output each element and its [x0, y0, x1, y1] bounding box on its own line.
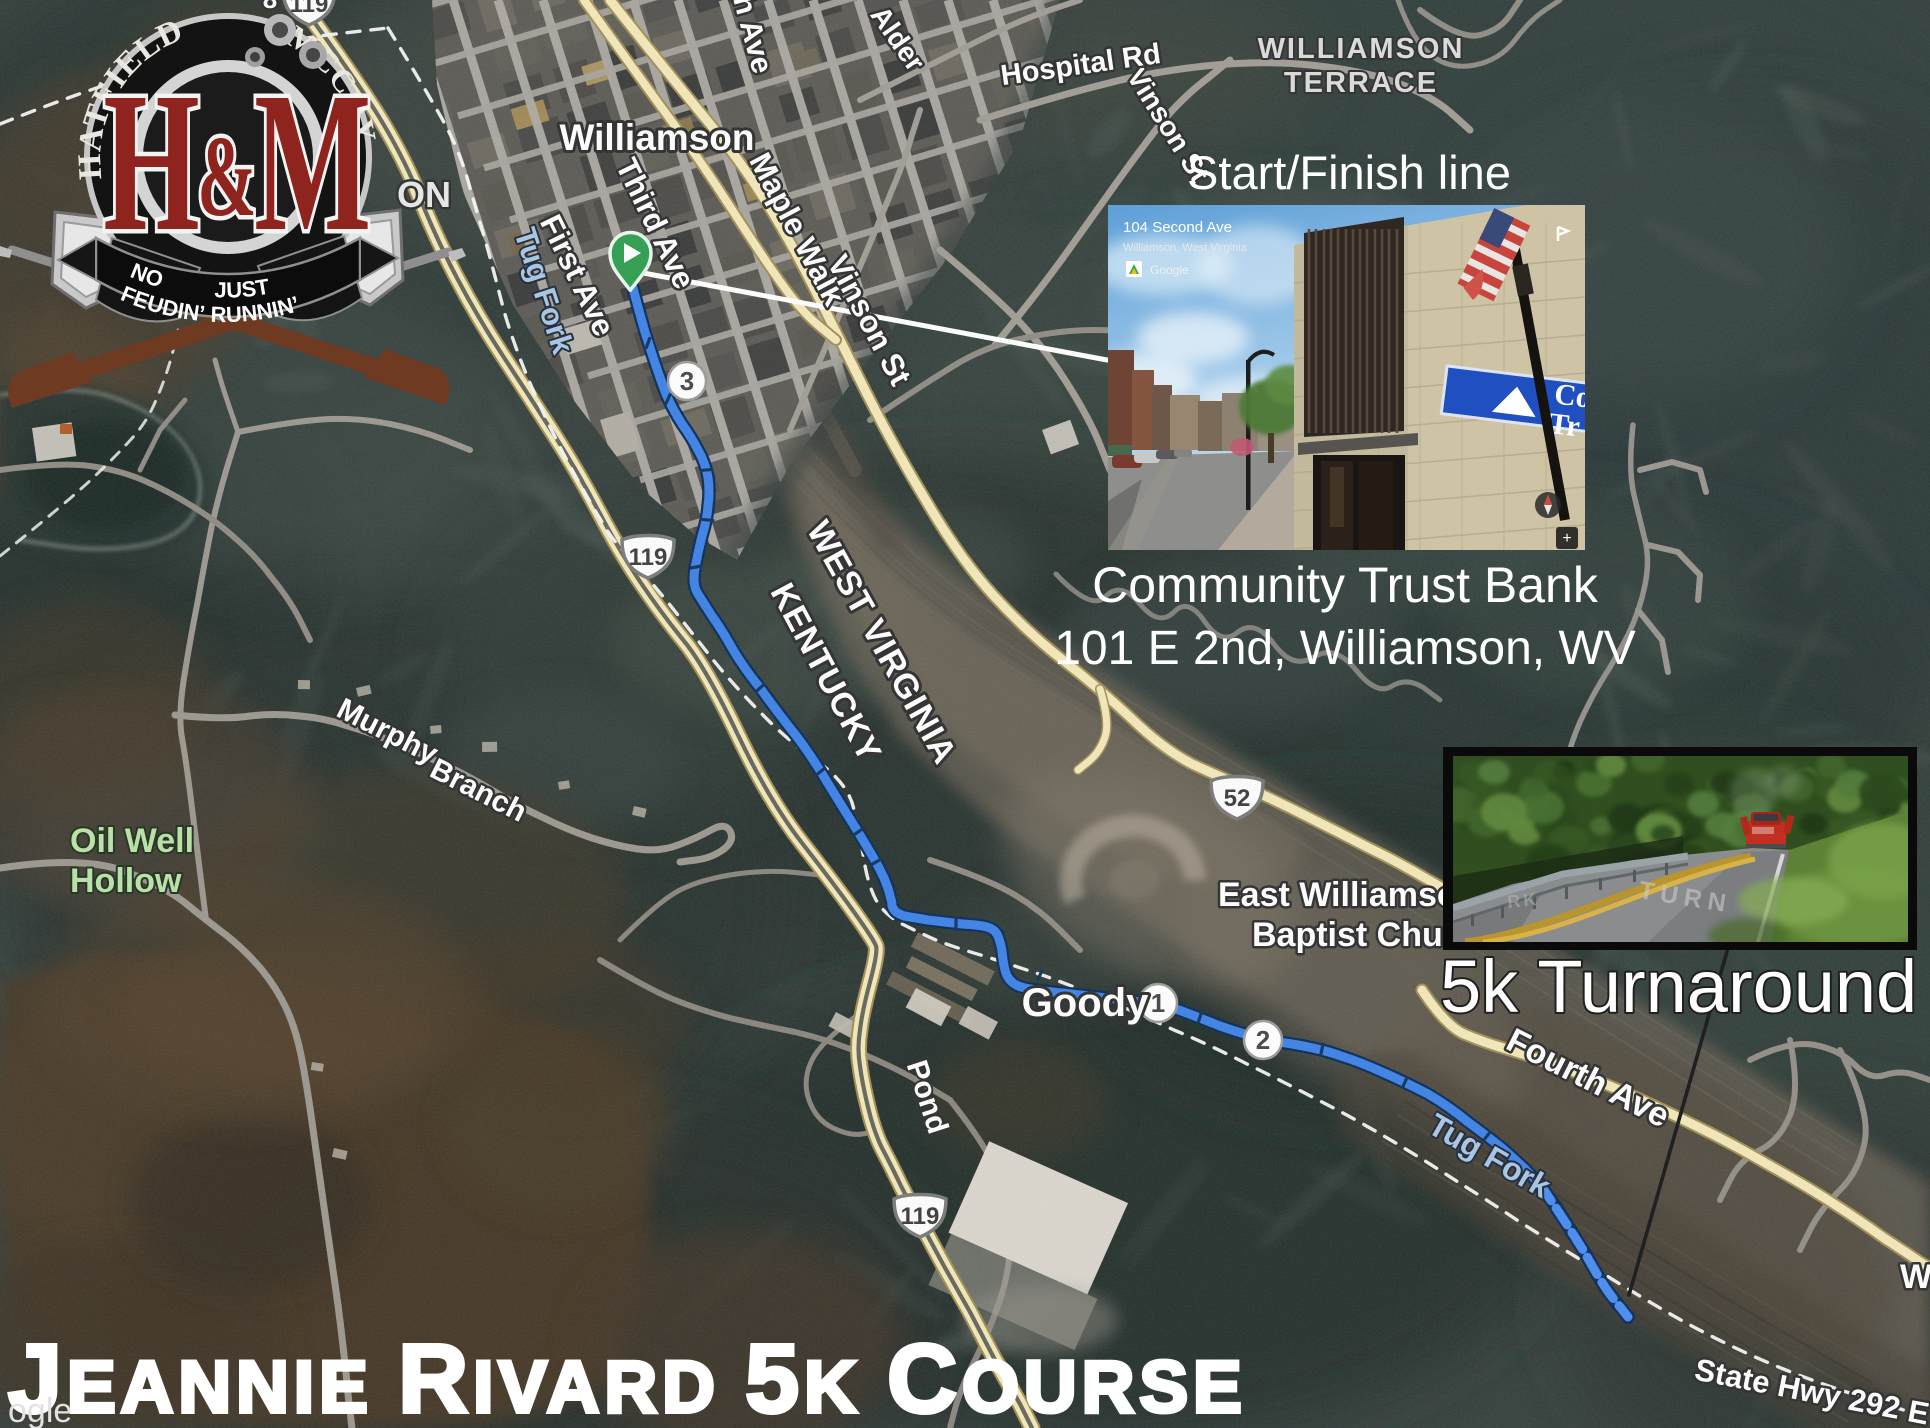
svg-text:5k Turnaround: 5k Turnaround	[1440, 945, 1917, 1028]
svg-text:Community Trust Bank: Community Trust Bank	[1092, 557, 1599, 613]
svg-text:Google: Google	[1150, 263, 1189, 277]
svg-text:Start/Finish line: Start/Finish line	[1187, 146, 1511, 199]
svg-text:RK: RK	[1506, 889, 1540, 912]
svg-text:101 E 2nd, Williamson, WV: 101 E 2nd, Williamson, WV	[1054, 622, 1636, 675]
svg-text:104 Second Ave: 104 Second Ave	[1123, 219, 1232, 236]
svg-text:ogle: ogle	[8, 1392, 72, 1428]
svg-text:Williamson, West Virginia: Williamson, West Virginia	[1123, 242, 1248, 254]
svg-text:+: +	[1562, 530, 1571, 547]
